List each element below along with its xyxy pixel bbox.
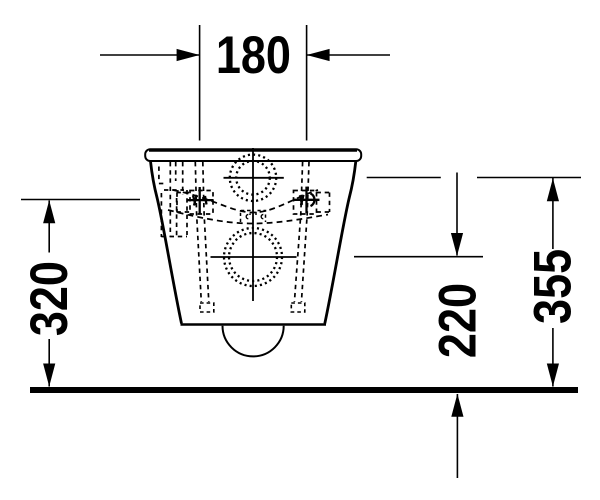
svg-text:355: 355 [523,249,582,324]
svg-text:220: 220 [428,283,487,358]
svg-text:180: 180 [216,25,291,84]
svg-text:320: 320 [19,261,78,336]
